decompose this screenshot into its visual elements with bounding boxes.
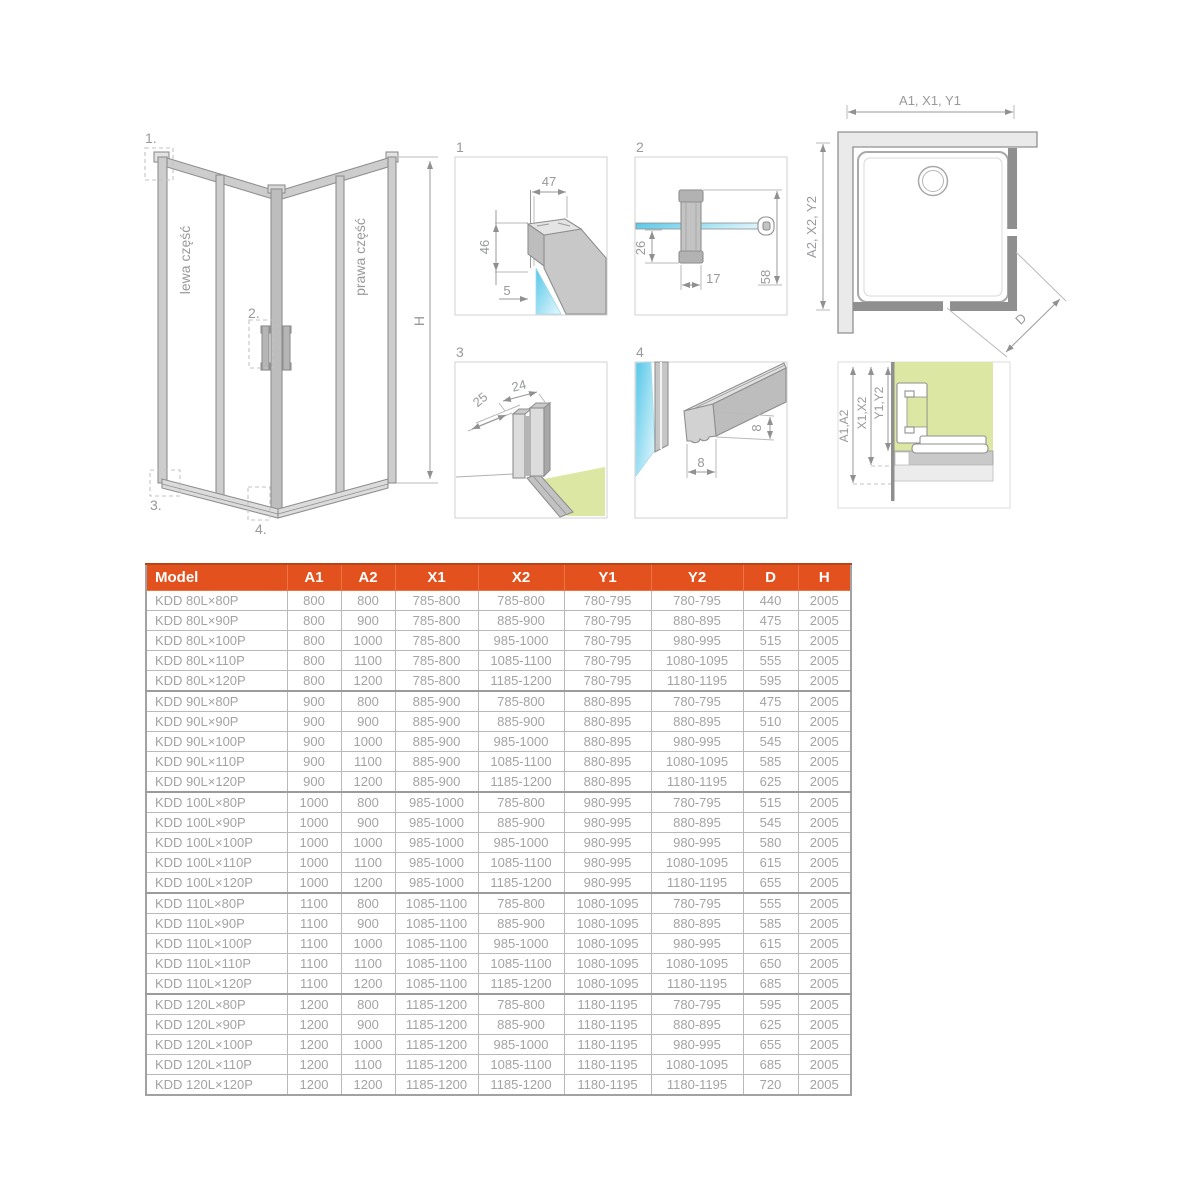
enclosure-drawing: 1. 2. 3. 4. lewa część prawa część H: [145, 130, 438, 537]
value-cell: 780-795: [564, 671, 651, 692]
model-cell: KDD 120L×90P: [146, 1015, 287, 1035]
model-cell: KDD 100L×120P: [146, 873, 287, 894]
model-cell: KDD 90L×100P: [146, 732, 287, 752]
value-cell: 885-900: [478, 813, 564, 833]
value-cell: 655: [743, 1035, 798, 1055]
value-cell: 880-895: [651, 611, 743, 631]
value-cell: 1180-1195: [651, 671, 743, 692]
model-cell: KDD 110L×100P: [146, 934, 287, 954]
model-cell: KDD 120L×120P: [146, 1075, 287, 1096]
technical-drawing: 1. 2. 3. 4. lewa część prawa część H 1 4…: [0, 0, 1200, 560]
value-cell: 885-900: [395, 712, 478, 732]
height-dim-label: H: [411, 316, 427, 326]
value-cell: 880-895: [564, 752, 651, 772]
value-cell: 615: [743, 853, 798, 873]
table-header: ModelA1A2X1X2Y1Y2DH: [146, 564, 851, 591]
value-cell: 980-995: [651, 732, 743, 752]
value-cell: 885-900: [478, 914, 564, 934]
table-row: KDD 90L×90P900900885-900885-900880-89588…: [146, 712, 851, 732]
value-cell: 1080-1095: [564, 974, 651, 995]
model-cell: KDD 80L×90P: [146, 611, 287, 631]
value-cell: 1100: [341, 954, 395, 974]
value-cell: 1085-1100: [478, 651, 564, 671]
value-cell: 510: [743, 712, 798, 732]
value-cell: 985-1000: [395, 792, 478, 813]
value-cell: 780-795: [651, 893, 743, 914]
value-cell: 1100: [287, 954, 341, 974]
value-cell: 780-795: [564, 651, 651, 671]
value-cell: 900: [341, 712, 395, 732]
value-cell: 1200: [287, 1015, 341, 1035]
value-cell: 1200: [287, 994, 341, 1015]
value-cell: 985-1000: [478, 732, 564, 752]
value-cell: 515: [743, 631, 798, 651]
callout-label-1: 1.: [145, 130, 157, 146]
value-cell: 2005: [798, 873, 851, 894]
value-cell: 1185-1200: [395, 1055, 478, 1075]
table-row: KDD 110L×110P110011001085-11001085-11001…: [146, 954, 851, 974]
value-cell: 655: [743, 873, 798, 894]
plan-dim-top-label: A1, X1, Y1: [899, 93, 961, 108]
column-header: X2: [478, 564, 564, 591]
section-view: A1,A2 X1,X2 Y1,Y2: [837, 362, 1010, 508]
wall-edge-line: [891, 362, 895, 501]
detail-2-dim-offset: 26: [633, 241, 648, 255]
table-row: KDD 100L×120P10001200985-10001185-120098…: [146, 873, 851, 894]
column-header: H: [798, 564, 851, 591]
value-cell: 1100: [341, 752, 395, 772]
value-cell: 1180-1195: [564, 1055, 651, 1075]
value-cell: 2005: [798, 752, 851, 772]
value-cell: 1080-1095: [564, 893, 651, 914]
value-cell: 685: [743, 1055, 798, 1075]
value-cell: 1000: [287, 792, 341, 813]
value-cell: 1180-1195: [651, 873, 743, 894]
value-cell: 2005: [798, 954, 851, 974]
value-cell: 980-995: [564, 833, 651, 853]
value-cell: 1000: [341, 934, 395, 954]
value-cell: 1000: [341, 1035, 395, 1055]
value-cell: 800: [287, 671, 341, 692]
value-cell: 1180-1195: [564, 1015, 651, 1035]
value-cell: 1185-1200: [478, 974, 564, 995]
bottom-rail-profile: [513, 403, 550, 478]
value-cell: 880-895: [564, 712, 651, 732]
value-cell: 1185-1200: [395, 1015, 478, 1035]
plan-view: A1, X1, Y1 A2, X2, Y2 D: [804, 93, 1066, 357]
value-cell: 585: [743, 752, 798, 772]
value-cell: 980-995: [651, 934, 743, 954]
value-cell: 885-900: [395, 691, 478, 712]
value-cell: 800: [341, 591, 395, 611]
model-cell: KDD 90L×80P: [146, 691, 287, 712]
value-cell: 785-800: [478, 792, 564, 813]
value-cell: 555: [743, 893, 798, 914]
value-cell: 1000: [287, 813, 341, 833]
value-cell: 545: [743, 813, 798, 833]
value-cell: 2005: [798, 893, 851, 914]
value-cell: 1100: [287, 974, 341, 995]
detail-1-number: 1: [456, 139, 464, 155]
section-dim-x-label: X1,X2: [855, 396, 869, 429]
value-cell: 985-1000: [478, 833, 564, 853]
value-cell: 980-995: [564, 853, 651, 873]
value-cell: 2005: [798, 833, 851, 853]
detail-2-number: 2: [636, 139, 644, 155]
value-cell: 1000: [287, 853, 341, 873]
model-cell: KDD 100L×80P: [146, 792, 287, 813]
model-cell: KDD 110L×110P: [146, 954, 287, 974]
value-cell: 545: [743, 732, 798, 752]
value-cell: 880-895: [564, 691, 651, 712]
value-cell: 985-1000: [395, 873, 478, 894]
table-row: KDD 80L×90P800900785-800885-900780-79588…: [146, 611, 851, 631]
header-row: ModelA1A2X1X2Y1Y2DH: [146, 564, 851, 591]
value-cell: 1080-1095: [564, 954, 651, 974]
value-cell: 1100: [287, 934, 341, 954]
table-row: KDD 110L×100P110010001085-1100985-100010…: [146, 934, 851, 954]
table-row: KDD 80L×100P8001000785-800985-1000780-79…: [146, 631, 851, 651]
handle-profile: [679, 190, 703, 263]
value-cell: 1185-1200: [395, 1035, 478, 1055]
value-cell: 1085-1100: [395, 974, 478, 995]
value-cell: 785-800: [478, 591, 564, 611]
value-cell: 780-795: [564, 591, 651, 611]
value-cell: 885-900: [478, 611, 564, 631]
value-cell: 1000: [341, 732, 395, 752]
detail-box-3: 3 24 25: [455, 344, 607, 518]
value-cell: 980-995: [564, 813, 651, 833]
value-cell: 1100: [287, 893, 341, 914]
value-cell: 1080-1095: [651, 1055, 743, 1075]
table-body: KDD 80L×80P800800785-800785-800780-79578…: [146, 591, 851, 1096]
value-cell: 780-795: [564, 631, 651, 651]
value-cell: 785-800: [395, 651, 478, 671]
value-cell: 800: [341, 893, 395, 914]
value-cell: 1000: [287, 873, 341, 894]
model-cell: KDD 100L×110P: [146, 853, 287, 873]
table-row: KDD 120L×90P12009001185-1200885-9001180-…: [146, 1015, 851, 1035]
value-cell: 580: [743, 833, 798, 853]
detail-3-number: 3: [456, 344, 464, 360]
value-cell: 880-895: [564, 772, 651, 793]
section-dim-a-label: A1,A2: [837, 409, 851, 442]
value-cell: 885-900: [395, 752, 478, 772]
value-cell: 1085-1100: [395, 934, 478, 954]
callout-label-4: 4.: [255, 521, 267, 537]
value-cell: 1185-1200: [478, 671, 564, 692]
model-cell: KDD 80L×120P: [146, 671, 287, 692]
model-cell: KDD 120L×80P: [146, 994, 287, 1015]
plan-dim-diagonal-label: D: [1012, 310, 1029, 327]
value-cell: 475: [743, 611, 798, 631]
callout-label-2: 2.: [248, 305, 260, 321]
table-row: KDD 100L×100P10001000985-1000985-1000980…: [146, 833, 851, 853]
value-cell: 800: [287, 631, 341, 651]
detail-1-dim-width: 47: [542, 174, 556, 189]
value-cell: 2005: [798, 914, 851, 934]
value-cell: 1085-1100: [478, 853, 564, 873]
value-cell: 1200: [341, 772, 395, 793]
value-cell: 1185-1200: [478, 1075, 564, 1096]
value-cell: 785-800: [395, 591, 478, 611]
floor-layer: [894, 465, 993, 481]
value-cell: 880-895: [651, 1015, 743, 1035]
value-cell: 1100: [341, 1055, 395, 1075]
model-cell: KDD 80L×100P: [146, 631, 287, 651]
table-row: KDD 90L×120P9001200885-9001185-1200880-8…: [146, 772, 851, 793]
table-row: KDD 120L×120P120012001185-12001185-12001…: [146, 1075, 851, 1096]
value-cell: 880-895: [651, 712, 743, 732]
dimensions-table: ModelA1A2X1X2Y1Y2DH KDD 80L×80P800800785…: [145, 563, 852, 1096]
model-cell: KDD 120L×110P: [146, 1055, 287, 1075]
value-cell: 1000: [341, 631, 395, 651]
table-row: KDD 110L×120P110012001085-11001185-12001…: [146, 974, 851, 995]
value-cell: 515: [743, 792, 798, 813]
value-cell: 900: [341, 1015, 395, 1035]
model-cell: KDD 110L×120P: [146, 974, 287, 995]
value-cell: 2005: [798, 1075, 851, 1096]
value-cell: 2005: [798, 772, 851, 793]
value-cell: 1080-1095: [564, 934, 651, 954]
value-cell: 1000: [287, 833, 341, 853]
value-cell: 2005: [798, 934, 851, 954]
callout-label-3: 3.: [150, 497, 162, 513]
value-cell: 800: [341, 691, 395, 712]
value-cell: 985-1000: [395, 813, 478, 833]
detail-1-dim-height: 46: [477, 240, 492, 254]
section-dim-y-label: Y1,Y2: [872, 386, 886, 419]
table-row: KDD 100L×110P10001100985-10001085-110098…: [146, 853, 851, 873]
value-cell: 785-800: [395, 611, 478, 631]
value-cell: 900: [341, 914, 395, 934]
value-cell: 2005: [798, 691, 851, 712]
value-cell: 2005: [798, 974, 851, 995]
table-row: KDD 120L×110P120011001185-12001085-11001…: [146, 1055, 851, 1075]
value-cell: 555: [743, 651, 798, 671]
model-cell: KDD 80L×80P: [146, 591, 287, 611]
column-header: Y2: [651, 564, 743, 591]
column-header: X1: [395, 564, 478, 591]
table-row: KDD 120L×100P120010001185-1200985-100011…: [146, 1035, 851, 1055]
value-cell: 2005: [798, 651, 851, 671]
value-cell: 2005: [798, 671, 851, 692]
value-cell: 1180-1195: [564, 1075, 651, 1096]
value-cell: 2005: [798, 1035, 851, 1055]
value-cell: 785-800: [395, 671, 478, 692]
table-row: KDD 80L×120P8001200785-8001185-1200780-7…: [146, 671, 851, 692]
detail-4-dim-height: 8: [749, 424, 764, 431]
value-cell: 1085-1100: [478, 1055, 564, 1075]
table-row: KDD 80L×80P800800785-800785-800780-79578…: [146, 591, 851, 611]
value-cell: 900: [287, 752, 341, 772]
detail-4-dim-width: 8: [697, 455, 704, 470]
value-cell: 900: [287, 772, 341, 793]
value-cell: 2005: [798, 994, 851, 1015]
value-cell: 780-795: [651, 591, 743, 611]
value-cell: 1100: [287, 914, 341, 934]
value-cell: 785-800: [478, 994, 564, 1015]
value-cell: 900: [341, 813, 395, 833]
value-cell: 980-995: [564, 792, 651, 813]
detail-box-4: 4 8 8: [635, 344, 787, 518]
door-bottom: [853, 302, 1017, 311]
value-cell: 1080-1095: [651, 954, 743, 974]
value-cell: 900: [341, 611, 395, 631]
value-cell: 1200: [341, 974, 395, 995]
value-cell: 1200: [341, 873, 395, 894]
model-cell: KDD 100L×90P: [146, 813, 287, 833]
value-cell: 2005: [798, 631, 851, 651]
value-cell: 2005: [798, 792, 851, 813]
value-cell: 685: [743, 974, 798, 995]
detail-box-2: 2 26 17 58: [633, 139, 787, 315]
detail-4-number: 4: [636, 344, 644, 360]
value-cell: 585: [743, 914, 798, 934]
plan-dim-side-label: A2, X2, Y2: [804, 196, 819, 258]
value-cell: 1080-1095: [651, 651, 743, 671]
value-cell: 785-800: [478, 893, 564, 914]
table-row: KDD 90L×100P9001000885-900985-1000880-89…: [146, 732, 851, 752]
value-cell: 595: [743, 994, 798, 1015]
value-cell: 780-795: [651, 691, 743, 712]
value-cell: 1085-1100: [478, 954, 564, 974]
column-header: A2: [341, 564, 395, 591]
value-cell: 1100: [341, 853, 395, 873]
value-cell: 1180-1195: [564, 994, 651, 1015]
detail-box-1: 1 47 46 5: [455, 139, 607, 315]
model-cell: KDD 120L×100P: [146, 1035, 287, 1055]
value-cell: 2005: [798, 591, 851, 611]
detail-2-dim-width: 17: [706, 271, 720, 286]
value-cell: 900: [287, 732, 341, 752]
detail-1-dim-glass: 5: [503, 283, 510, 298]
value-cell: 1185-1200: [395, 1075, 478, 1096]
value-cell: 800: [341, 994, 395, 1015]
value-cell: 1180-1195: [651, 772, 743, 793]
value-cell: 2005: [798, 611, 851, 631]
value-cell: 1200: [287, 1055, 341, 1075]
value-cell: 800: [287, 591, 341, 611]
model-cell: KDD 80L×110P: [146, 651, 287, 671]
value-cell: 800: [341, 792, 395, 813]
value-cell: 880-895: [564, 732, 651, 752]
value-cell: 885-900: [395, 732, 478, 752]
value-cell: 880-895: [651, 813, 743, 833]
value-cell: 615: [743, 934, 798, 954]
value-cell: 780-795: [651, 792, 743, 813]
value-cell: 785-800: [478, 691, 564, 712]
value-cell: 800: [287, 651, 341, 671]
value-cell: 800: [287, 611, 341, 631]
value-cell: 2005: [798, 813, 851, 833]
table-row: KDD 120L×80P12008001185-1200785-8001180-…: [146, 994, 851, 1015]
table-row: KDD 100L×80P1000800985-1000785-800980-99…: [146, 792, 851, 813]
value-cell: 650: [743, 954, 798, 974]
value-cell: 2005: [798, 1055, 851, 1075]
column-header: A1: [287, 564, 341, 591]
value-cell: 785-800: [395, 631, 478, 651]
value-cell: 880-895: [651, 914, 743, 934]
column-header: Model: [146, 564, 287, 591]
column-header: Y1: [564, 564, 651, 591]
value-cell: 1085-1100: [478, 752, 564, 772]
model-cell: KDD 90L×120P: [146, 772, 287, 793]
detail-2-dim-height: 58: [758, 270, 773, 284]
value-cell: 440: [743, 591, 798, 611]
value-cell: 1080-1095: [564, 914, 651, 934]
value-cell: 1180-1195: [564, 1035, 651, 1055]
model-cell: KDD 90L×90P: [146, 712, 287, 732]
value-cell: 1180-1195: [651, 1075, 743, 1096]
model-cell: KDD 100L×100P: [146, 833, 287, 853]
value-cell: 1185-1200: [395, 994, 478, 1015]
value-cell: 985-1000: [478, 631, 564, 651]
model-cell: KDD 110L×80P: [146, 893, 287, 914]
value-cell: 980-995: [651, 1035, 743, 1055]
table-row: KDD 110L×90P11009001085-1100885-9001080-…: [146, 914, 851, 934]
value-cell: 900: [287, 691, 341, 712]
value-cell: 2005: [798, 1015, 851, 1035]
table-row: KDD 90L×80P900800885-900785-800880-89578…: [146, 691, 851, 712]
value-cell: 1100: [341, 651, 395, 671]
value-cell: 720: [743, 1075, 798, 1096]
table-row: KDD 110L×80P11008001085-1100785-8001080-…: [146, 893, 851, 914]
table-row: KDD 80L×110P8001100785-8001085-1100780-7…: [146, 651, 851, 671]
value-cell: 885-900: [478, 1015, 564, 1035]
value-cell: 780-795: [651, 994, 743, 1015]
value-cell: 1185-1200: [478, 772, 564, 793]
value-cell: 1200: [287, 1075, 341, 1096]
value-cell: 980-995: [651, 833, 743, 853]
value-cell: 985-1000: [395, 833, 478, 853]
value-cell: 595: [743, 671, 798, 692]
panel-left-label: lewa część: [177, 226, 193, 294]
value-cell: 885-900: [395, 772, 478, 793]
value-cell: 1085-1100: [395, 893, 478, 914]
value-cell: 1080-1095: [651, 853, 743, 873]
value-cell: 1185-1200: [478, 873, 564, 894]
model-cell: KDD 90L×110P: [146, 752, 287, 772]
value-cell: 1200: [341, 1075, 395, 1096]
table-row: KDD 100L×90P1000900985-1000885-900980-99…: [146, 813, 851, 833]
panel-right-label: prawa część: [352, 218, 368, 296]
value-cell: 1085-1100: [395, 914, 478, 934]
value-cell: 2005: [798, 853, 851, 873]
column-header: D: [743, 564, 798, 591]
value-cell: 900: [287, 712, 341, 732]
model-cell: KDD 110L×90P: [146, 914, 287, 934]
value-cell: 1200: [341, 671, 395, 692]
value-cell: 980-995: [651, 631, 743, 651]
value-cell: 1080-1095: [651, 752, 743, 772]
value-cell: 1085-1100: [395, 954, 478, 974]
value-cell: 475: [743, 691, 798, 712]
value-cell: 1200: [287, 1035, 341, 1055]
value-cell: 2005: [798, 732, 851, 752]
table-row: KDD 90L×110P9001100885-9001085-1100880-8…: [146, 752, 851, 772]
value-cell: 625: [743, 1015, 798, 1035]
value-cell: 625: [743, 772, 798, 793]
value-cell: 2005: [798, 712, 851, 732]
value-cell: 985-1000: [478, 1035, 564, 1055]
value-cell: 1000: [341, 833, 395, 853]
value-cell: 980-995: [564, 873, 651, 894]
value-cell: 780-795: [564, 611, 651, 631]
value-cell: 985-1000: [478, 934, 564, 954]
value-cell: 1180-1195: [651, 974, 743, 995]
value-cell: 885-900: [478, 712, 564, 732]
